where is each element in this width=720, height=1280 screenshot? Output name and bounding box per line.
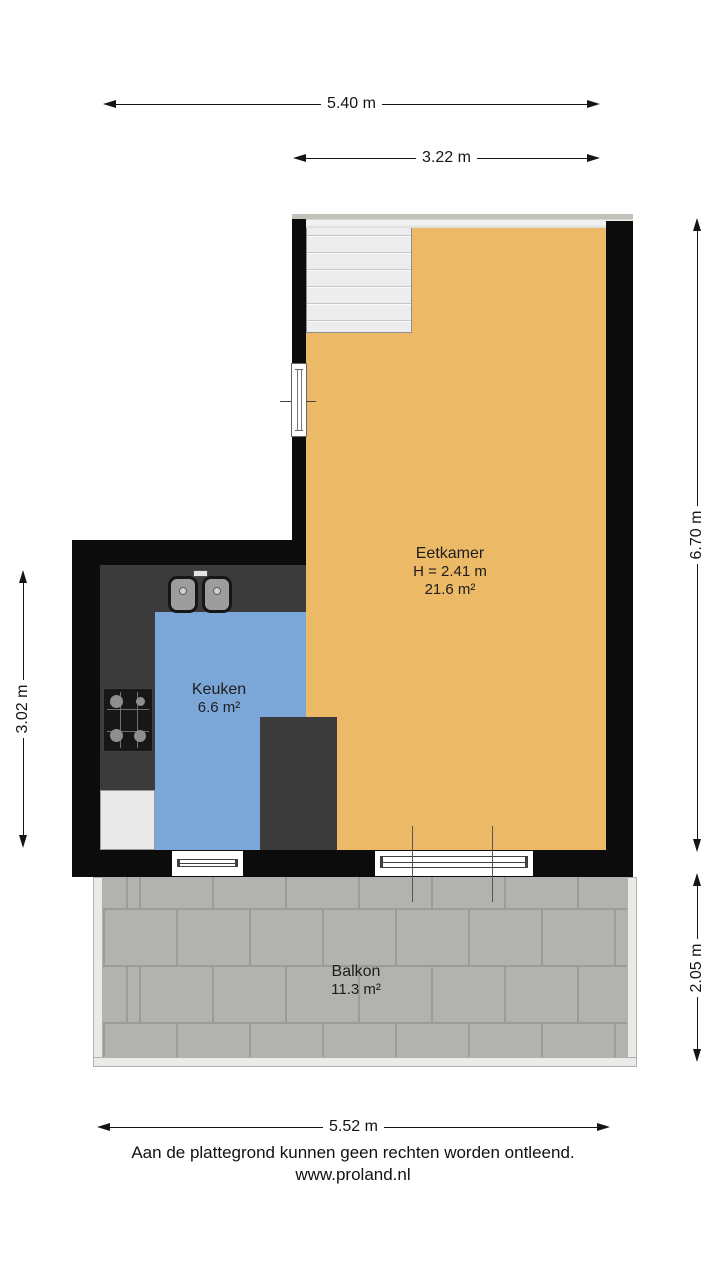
arrow-left-icon [103, 100, 116, 108]
balkon-label: Balkon 11.3 m² [331, 963, 381, 999]
dimension-left-kitchen: 3.02 m [15, 570, 31, 848]
stove-icon [103, 688, 153, 752]
room-ceiling-height: H = 2.41 m [413, 563, 487, 581]
balcony-railing-left [93, 877, 103, 1067]
website-text: www.proland.nl [0, 1164, 706, 1186]
kitchen-appliance [100, 790, 155, 850]
arrow-down-icon [19, 835, 27, 848]
door-tick [412, 826, 413, 902]
sliding-door-icon [375, 851, 533, 876]
faucet-icon [193, 570, 208, 577]
disclaimer-text: Aan de plattegrond kunnen geen rechten w… [0, 1142, 706, 1164]
dimension-top-total: 5.40 m [103, 96, 600, 112]
dimension-top-upper: 3.22 m [293, 150, 600, 166]
dimension-right-main: 6.70 m [689, 218, 705, 852]
room-name: Balkon [331, 963, 381, 981]
wall-bottom [72, 850, 633, 877]
footer: Aan de plattegrond kunnen geen rechten w… [0, 1142, 706, 1186]
arrow-up-icon [19, 570, 27, 583]
window-kitchen-icon [172, 851, 243, 876]
wall-kitchen-top [72, 540, 306, 565]
dimension-bottom-total: 5.52 m [97, 1119, 610, 1135]
room-area: 11.3 m² [331, 981, 381, 999]
wall-kitchen-left [72, 540, 100, 877]
dimension-right-balcony: 2.05 m [689, 873, 705, 1062]
eetkamer-label: Eetkamer H = 2.41 m 21.6 m² [413, 545, 487, 599]
arrow-up-icon [693, 873, 701, 886]
sink-icon [168, 573, 232, 613]
dimension-label: 5.52 m [323, 1118, 384, 1136]
room-area: 21.6 m² [413, 581, 487, 599]
arrow-right-icon [597, 1123, 610, 1131]
floor-plan: 5.40 m 3.22 m [0, 0, 720, 1280]
window-left-icon [291, 363, 307, 437]
balcony-railing-right [627, 877, 637, 1067]
arrow-right-icon [587, 154, 600, 162]
arrow-up-icon [693, 218, 701, 231]
balcony-railing-bottom [93, 1057, 637, 1067]
door-tick [492, 826, 493, 902]
dimension-label: 3.22 m [416, 149, 477, 167]
dimension-label: 5.40 m [321, 95, 382, 113]
stairs-icon [306, 219, 412, 333]
arrow-down-icon [693, 839, 701, 852]
dimension-label: 3.02 m [14, 685, 32, 734]
arrow-down-icon [693, 1049, 701, 1062]
dimension-label: 6.70 m [688, 511, 706, 560]
top-window-band [292, 214, 633, 228]
kitchen-cabinet [260, 717, 337, 850]
room-name: Keuken [192, 681, 246, 699]
arrow-left-icon [97, 1123, 110, 1131]
keuken-label: Keuken 6.6 m² [192, 681, 246, 717]
dimension-label: 2.05 m [688, 943, 706, 992]
arrow-left-icon [293, 154, 306, 162]
arrow-right-icon [587, 100, 600, 108]
room-area: 6.6 m² [192, 699, 246, 717]
room-name: Eetkamer [413, 545, 487, 563]
wall-right [606, 221, 633, 877]
